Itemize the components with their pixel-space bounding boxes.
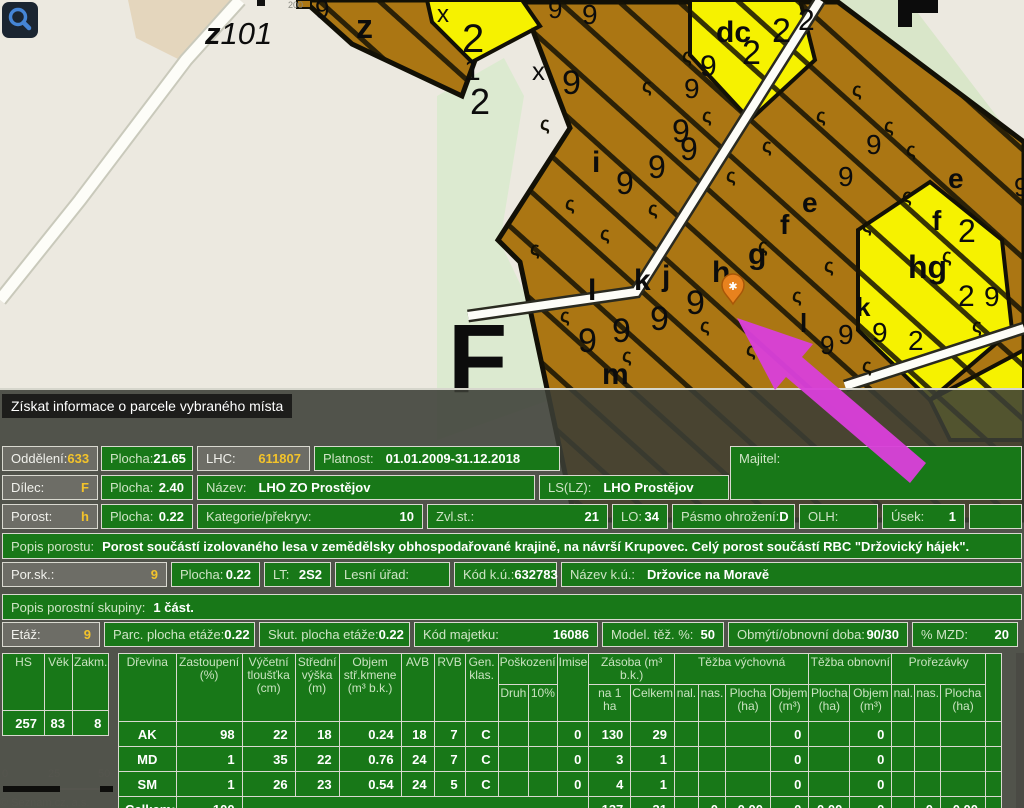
panel-field: Zvl.st.:21 <box>427 504 608 529</box>
field-value: 90/30 <box>866 627 899 642</box>
data-cell <box>986 722 1002 747</box>
field-label: Kód majetku: <box>423 627 499 642</box>
parcel-label: 9 <box>612 312 631 350</box>
panel-field: Dílec:F <box>2 475 98 500</box>
data-cell: 0 <box>850 772 892 797</box>
field-label: Plocha: <box>110 451 153 466</box>
field-label: % MZD: <box>921 627 968 642</box>
coppice-symbol: ς <box>642 76 652 97</box>
data-cell: 24 <box>401 772 434 797</box>
header-cell: nal. <box>674 685 698 722</box>
field-label: Popis porostní skupiny: <box>11 600 145 615</box>
data-cell: MD <box>119 747 177 772</box>
field-label: Kód k.ú.: <box>463 567 514 582</box>
panel-field: LHC:611807 <box>197 446 310 471</box>
header-cell: Výčetnítloušťka(cm) <box>242 654 295 722</box>
data-cell: 130 <box>589 722 631 747</box>
data-cell <box>674 722 698 747</box>
panel-field: LS(LZ):LHO Prostějov <box>539 475 729 500</box>
total-cell <box>892 797 915 808</box>
parcel-label: 2 <box>798 4 815 37</box>
app-screen: 200 z101 F 9zx21299x9dc922299i999e99fghj… <box>0 0 1024 808</box>
total-cell: 0 <box>770 797 808 808</box>
coppice-symbol: ς <box>600 224 610 245</box>
field-value: 01.01.2009-31.12.2018 <box>386 451 520 466</box>
stand-summary-table: HSVěkZakm.257838 <box>2 653 109 736</box>
data-cell: C <box>465 722 498 747</box>
coppice-symbol: ς <box>852 80 862 101</box>
panel-field: Název k.ú.:Držovice na Moravě <box>561 562 1022 587</box>
total-cell: 0.00 <box>725 797 770 808</box>
field-value: F <box>81 480 89 495</box>
data-cell: 7 <box>434 722 465 747</box>
data-cell <box>809 772 850 797</box>
panel-field: Lesní úřad: <box>335 562 450 587</box>
field-label: LT: <box>273 567 289 582</box>
header-cell: Objemstř.kmene(m³ b.k.) <box>339 654 401 722</box>
stand-description-row: Popis porostu: Porost součástí izolované… <box>2 533 1022 559</box>
total-cell <box>986 797 1002 808</box>
parcel-label: 9 <box>984 281 1000 312</box>
parcel-label: z <box>356 8 373 46</box>
header-cell <box>986 654 1002 722</box>
field-value: 21.65 <box>153 451 186 466</box>
parcel-label: 9 <box>315 0 329 24</box>
field-value: 1 část. <box>153 600 193 615</box>
parcel-label: f <box>780 209 790 240</box>
parcel-label: 9 <box>648 149 666 185</box>
data-cell: 22 <box>295 747 339 772</box>
field-value: 0.22 <box>226 567 251 582</box>
coppice-symbol: ς <box>682 46 692 67</box>
parcel-label: x <box>532 56 545 86</box>
field-value: D <box>779 509 788 524</box>
data-cell: 8 <box>73 711 109 736</box>
field-label: LS(LZ): <box>548 480 591 495</box>
coppice-symbol: ς <box>746 340 756 361</box>
total-cell: 100 <box>176 797 242 808</box>
data-cell: 0 <box>557 772 589 797</box>
coppice-symbol: ς <box>565 194 575 215</box>
map-tooltip: Získat informace o parcele vybraného mís… <box>2 394 292 418</box>
data-cell: C <box>465 772 498 797</box>
data-cell: 26 <box>242 772 295 797</box>
panel-field: LO:34 <box>612 504 668 529</box>
field-label: OLH: <box>808 509 838 524</box>
total-cell: 0.00 <box>809 797 850 808</box>
panel-field: Majitel: <box>730 446 1022 500</box>
field-label: Plocha: <box>110 509 153 524</box>
panel-field: Platnost:01.01.2009-31.12.2018 <box>314 446 560 471</box>
data-cell <box>674 772 698 797</box>
field-label: Dílec: <box>11 480 44 495</box>
data-cell: C <box>465 747 498 772</box>
panel-field: Model. těž. %:50 <box>602 622 724 647</box>
coppice-symbol: ς <box>862 356 872 377</box>
panel-field: Obmýtí/obnovní doba:90/30 <box>728 622 908 647</box>
data-cell: 22 <box>242 722 295 747</box>
data-cell: 1 <box>631 747 675 772</box>
road-west <box>0 0 240 300</box>
header-cell: Objem(m³) <box>850 685 892 722</box>
parcel-label: k <box>856 292 871 322</box>
parcel-label: 9 <box>700 50 717 83</box>
parcel-label: 9 <box>680 131 698 167</box>
data-cell <box>498 722 529 747</box>
coppice-symbol: ς <box>726 166 736 187</box>
field-label: Skut. plocha etáže: <box>268 627 379 642</box>
map-tiny-label: 200 <box>288 0 303 10</box>
total-cell: 0 <box>915 797 941 808</box>
field-value: h <box>81 509 89 524</box>
data-cell: 35 <box>242 747 295 772</box>
field-value: 0.22 <box>224 627 249 642</box>
scale-ticks: 0 25 50 <box>0 768 114 782</box>
data-cell: 0.54 <box>339 772 401 797</box>
data-cell: SM <box>119 772 177 797</box>
header-cell: Objem(m³) <box>770 685 808 722</box>
header-cell: Plocha(ha) <box>725 685 770 722</box>
field-label: Oddělení: <box>11 451 67 466</box>
parcel-label: 9 <box>820 330 834 360</box>
field-label: LHC: <box>206 451 236 466</box>
data-cell <box>892 747 915 772</box>
header-cell: Střednívýška(m) <box>295 654 339 722</box>
panel-field: Kategorie/překryv:10 <box>197 504 423 529</box>
data-cell: 18 <box>401 722 434 747</box>
data-cell: 18 <box>295 722 339 747</box>
field-value: 633 <box>67 451 89 466</box>
field-value: 21 <box>585 509 599 524</box>
parcel-label: x <box>437 1 449 28</box>
header-cell: na 1 ha <box>589 685 631 722</box>
map-fragment <box>257 0 265 6</box>
panel-field: Skut. plocha etáže:0.22 <box>259 622 410 647</box>
data-cell <box>674 747 698 772</box>
parcel-label: e <box>948 163 964 194</box>
header-cell: Těžba výchovná <box>674 654 808 685</box>
parcel-label: 9 <box>866 129 882 160</box>
parcel-label: 9 <box>838 161 854 192</box>
data-cell: 1 <box>176 747 242 772</box>
total-cell: 0 <box>850 797 892 808</box>
coppice-symbol: ς <box>942 246 952 267</box>
header-cell: nas. <box>698 685 725 722</box>
parcel-label: 2 <box>958 213 976 249</box>
data-cell <box>529 772 557 797</box>
coppice-symbol: ς <box>884 116 894 137</box>
panel-field: Úsek:1 <box>882 504 965 529</box>
data-cell <box>498 772 529 797</box>
parcel-label: j <box>661 260 670 293</box>
header-cell: Věk <box>45 654 73 711</box>
data-cell <box>529 722 557 747</box>
parcel-label: 2 <box>470 81 490 122</box>
data-cell: 1 <box>176 772 242 797</box>
panel-field: Etáž:9 <box>2 622 100 647</box>
panel-field: Pásmo ohrožení:D <box>672 504 795 529</box>
coppice-symbol: ς <box>560 306 570 327</box>
field-value: Porost součástí izolovaného lesa v zeměd… <box>102 539 969 554</box>
data-cell: 0 <box>770 772 808 797</box>
map-scale-bar: 0 25 50 © Seznam.cz, a.s. <box>0 768 114 808</box>
coppice-symbol: ς <box>758 236 768 257</box>
panel-field: Por.sk.:9 <box>2 562 167 587</box>
field-value: 632783 <box>514 567 557 582</box>
data-cell: 1 <box>631 772 675 797</box>
data-cell <box>986 772 1002 797</box>
field-value: 20 <box>995 627 1009 642</box>
parcel-label: 9 <box>562 64 581 102</box>
coppice-symbol: ς <box>816 106 826 127</box>
field-label: Název: <box>206 480 246 495</box>
data-cell <box>892 722 915 747</box>
data-cell: 257 <box>3 711 45 736</box>
panel-field <box>969 504 1022 529</box>
header-cell: Celkem <box>631 685 675 722</box>
field-value: Držovice na Moravě <box>647 567 769 582</box>
coppice-symbol: ς <box>622 346 632 367</box>
panel-field: Porost:h <box>2 504 98 529</box>
total-cell: 0 <box>698 797 725 808</box>
parcel-label: 9 <box>872 317 888 348</box>
table-edge-strip <box>1016 653 1024 808</box>
coppice-symbol: ς <box>824 256 834 277</box>
parcel-label: k <box>634 264 651 297</box>
field-value: 2.40 <box>159 480 184 495</box>
field-label: Lesní úřad: <box>344 567 409 582</box>
panel-field: Kód k.ú.:632783 <box>454 562 557 587</box>
parcel-label: 2 <box>908 325 924 356</box>
zoom-search-button[interactable] <box>2 2 38 38</box>
data-cell: 3 <box>589 747 631 772</box>
header-cell: Gen.klas. <box>465 654 498 722</box>
parcel-label: e <box>802 187 818 218</box>
field-value: 0.22 <box>159 509 184 524</box>
data-cell <box>941 772 986 797</box>
parcel-label: 9 <box>838 319 854 350</box>
parcel-label: f <box>932 205 942 236</box>
parcel-label: 2 <box>772 12 791 50</box>
field-label: Zvl.st.: <box>436 509 474 524</box>
coppice-symbol: ς <box>902 186 912 207</box>
data-cell: 24 <box>401 747 434 772</box>
parcel-label: 9 <box>650 300 669 338</box>
data-cell <box>809 747 850 772</box>
header-cell: Zakm. <box>73 654 109 711</box>
coppice-symbol: ς <box>792 286 802 307</box>
scale-tick: 25 <box>48 768 60 780</box>
parcel-label: l <box>588 274 596 307</box>
header-cell: Plocha(ha) <box>941 685 986 722</box>
field-value: LHO ZO Prostějov <box>258 480 370 495</box>
header-cell: 10% <box>529 685 557 722</box>
panel-field: LT:2S2 <box>264 562 331 587</box>
data-cell <box>725 772 770 797</box>
header-cell: Těžba obnovní <box>809 654 892 685</box>
total-cell <box>674 797 698 808</box>
field-label: Platnost: <box>323 451 374 466</box>
field-label: Majitel: <box>739 451 780 466</box>
data-cell: 0 <box>850 722 892 747</box>
field-value: 16086 <box>553 627 589 642</box>
total-cell: 137 <box>589 797 631 808</box>
data-cell: 0.24 <box>339 722 401 747</box>
header-cell: Druh <box>498 685 529 722</box>
parcel-label: 2 <box>742 34 761 72</box>
field-value: LHO Prostějov <box>603 480 693 495</box>
data-cell <box>529 747 557 772</box>
field-label: Plocha: <box>110 480 153 495</box>
coppice-symbol: ς <box>862 216 872 237</box>
panel-field: Plocha:2.40 <box>101 475 193 500</box>
panel-field: Parc. plocha etáže:0.22 <box>104 622 255 647</box>
data-cell: 0 <box>557 747 589 772</box>
panel-field: OLH: <box>799 504 878 529</box>
parcel-label: 9 <box>684 73 700 104</box>
data-cell <box>725 747 770 772</box>
magnifier-icon <box>2 2 38 38</box>
scale-tick: 0 <box>2 768 8 780</box>
region-code-z101: z101 <box>204 16 272 51</box>
field-value: 0.22 <box>379 627 404 642</box>
scale-segments <box>0 786 114 794</box>
header-cell: Plocha(ha) <box>809 685 850 722</box>
species-table: DřevinaZastoupení(%)Výčetnítloušťka(cm)S… <box>118 653 1002 808</box>
field-label: Plocha: <box>180 567 223 582</box>
header-cell: RVB <box>434 654 465 722</box>
scale-tick: 50 <box>98 768 110 780</box>
total-cell: 0.00 <box>941 797 986 808</box>
data-cell: 4 <box>589 772 631 797</box>
field-label: Obmýtí/obnovní doba: <box>737 627 865 642</box>
data-cell <box>915 722 941 747</box>
data-cell <box>915 747 941 772</box>
data-cell: 7 <box>434 747 465 772</box>
data-cell <box>986 747 1002 772</box>
header-cell: AVB <box>401 654 434 722</box>
field-label: Model. těž. %: <box>611 627 693 642</box>
data-cell <box>809 722 850 747</box>
field-label: LO: <box>621 509 642 524</box>
field-label: Porost: <box>11 509 52 524</box>
field-value: 34 <box>645 509 659 524</box>
data-cell <box>698 772 725 797</box>
data-cell: 0 <box>770 722 808 747</box>
parcel-label: i <box>592 146 600 179</box>
data-cell <box>725 722 770 747</box>
coppice-symbol: ς <box>700 316 710 337</box>
data-cell: 0 <box>850 747 892 772</box>
panel-field: Oddělení:633 <box>2 446 98 471</box>
field-value: 50 <box>701 627 715 642</box>
total-cell <box>242 797 589 808</box>
panel-field: % MZD:20 <box>912 622 1018 647</box>
data-cell <box>941 722 986 747</box>
coppice-symbol: ς <box>762 136 772 157</box>
parcel-label: 9 <box>1014 172 1024 202</box>
header-cell: Poškození <box>498 654 557 685</box>
panel-field: Plocha:0.22 <box>171 562 260 587</box>
field-label: Kategorie/překryv: <box>206 509 312 524</box>
data-cell: 83 <box>45 711 73 736</box>
field-label: Popis porostu: <box>11 539 94 554</box>
parcel-label: 9 <box>578 322 597 360</box>
header-cell: Dřevina <box>119 654 177 722</box>
coppice-symbol: ς <box>906 140 916 161</box>
header-cell: Imise <box>557 654 589 722</box>
data-cell <box>941 747 986 772</box>
data-cell <box>892 772 915 797</box>
field-value: 1 <box>949 509 956 524</box>
field-label: Název k.ú.: <box>570 567 635 582</box>
parcel-label: 2 <box>958 280 975 313</box>
data-cell <box>915 772 941 797</box>
data-cell: AK <box>119 722 177 747</box>
data-cell: 5 <box>434 772 465 797</box>
data-cell <box>498 747 529 772</box>
coppice-symbol: ς <box>530 239 540 260</box>
coppice-symbol: ς <box>972 316 982 337</box>
panel-field: Plocha:21.65 <box>101 446 193 471</box>
data-cell: 98 <box>176 722 242 747</box>
data-cell <box>698 747 725 772</box>
data-cell: 29 <box>631 722 675 747</box>
group-description-row: Popis porostní skupiny: 1 část. <box>2 594 1022 620</box>
panel-field: Kód majetku:16086 <box>414 622 598 647</box>
header-cell: nas. <box>915 685 941 722</box>
header-cell: HS <box>3 654 45 711</box>
panel-field: Plocha:0.22 <box>101 504 193 529</box>
marker-star-icon: ✱ <box>728 281 737 293</box>
data-cell: 0 <box>770 747 808 772</box>
parcel-label: 9 <box>616 165 634 201</box>
data-cell <box>698 722 725 747</box>
field-label: Pásmo ohrožení: <box>681 509 779 524</box>
map-copyright: © Seznam.cz, a.s. <box>0 797 114 808</box>
coppice-symbol: ς <box>702 106 712 127</box>
field-value: 611807 <box>258 451 301 466</box>
total-cell: Celkem: <box>119 797 177 808</box>
parcel-label: 9 <box>582 0 598 30</box>
header-cell: Zastoupení(%) <box>176 654 242 722</box>
header-cell: Zásoba (m³ b.k.) <box>589 654 675 685</box>
field-label: Úsek: <box>891 509 924 524</box>
coppice-symbol: ς <box>648 199 658 220</box>
field-label: Etáž: <box>11 627 41 642</box>
data-cell: 0 <box>557 722 589 747</box>
panel-field: Název:LHO ZO Prostějov <box>197 475 535 500</box>
field-label: Por.sk.: <box>11 567 54 582</box>
field-value: 9 <box>151 567 158 582</box>
field-label: Parc. plocha etáže: <box>113 627 224 642</box>
field-value: 2S2 <box>299 567 322 582</box>
header-cell: Prořezávky <box>892 654 986 685</box>
data-cell: 0.76 <box>339 747 401 772</box>
coppice-symbol: ς <box>540 114 550 135</box>
parcel-label: 9 <box>548 0 562 24</box>
parcel-label: l <box>800 308 807 338</box>
field-value: 10 <box>400 509 414 524</box>
total-cell: 31 <box>631 797 675 808</box>
data-cell: 23 <box>295 772 339 797</box>
field-value: 9 <box>84 627 91 642</box>
header-cell: nal. <box>892 685 915 722</box>
